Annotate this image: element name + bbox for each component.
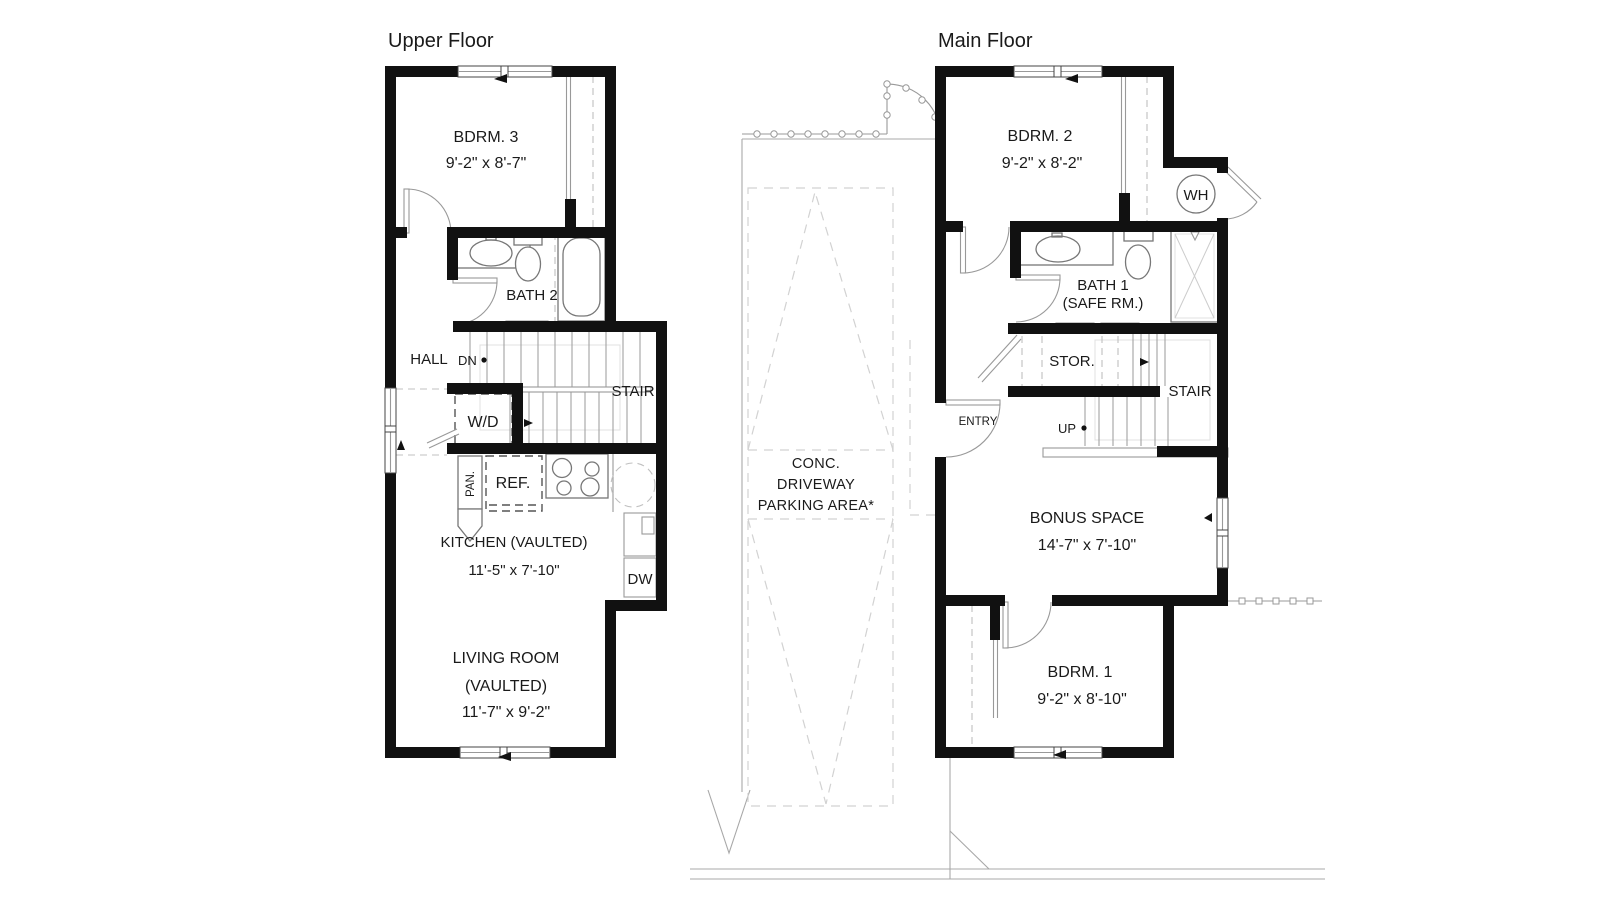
bath1-door xyxy=(1016,275,1060,322)
sidewalk xyxy=(690,758,1325,879)
bath2-door xyxy=(453,278,497,325)
storage-label: STOR. xyxy=(1049,353,1095,370)
bonus-space-dims: 14'-7" x 7'-10" xyxy=(1038,537,1136,554)
kitchen-dims: 11'-5" x 7'-10" xyxy=(468,562,559,579)
bedroom3-label: BDRM. 3 xyxy=(454,129,519,146)
kitchen-label: KITCHEN (VAULTED) xyxy=(441,534,588,551)
stove-icon xyxy=(546,454,608,498)
main-floor-plan: Main Floor xyxy=(935,30,1261,759)
stair-up-dot xyxy=(1081,425,1086,430)
driveway-label-line1: CONC. xyxy=(792,456,840,472)
stair-direction-arrow xyxy=(1140,358,1149,366)
washer-dryer-label: W/D xyxy=(467,414,498,431)
bedroom3-dims: 9'-2" x 8'-7" xyxy=(446,155,527,172)
living-room-dims: 11'-7" x 9'-2" xyxy=(462,704,550,721)
upper-floor-plan: Upper Floor xyxy=(385,30,667,761)
floor-plan-drawing: CONC. DRIVEWAY PARKING AREA* xyxy=(0,0,1600,905)
upper-floor-title: Upper Floor xyxy=(388,30,494,52)
window-arrow xyxy=(397,440,405,450)
stair-up-label: UP xyxy=(1058,421,1076,436)
entry-door xyxy=(946,400,1000,457)
bedroom2-door xyxy=(961,227,1010,273)
upper-stair-label: STAIR xyxy=(611,383,654,400)
bedroom1-door xyxy=(1003,602,1051,648)
window-arrow xyxy=(1204,513,1212,522)
window xyxy=(1217,498,1228,568)
window xyxy=(385,388,396,473)
storage-door xyxy=(978,335,1021,382)
bedroom3-door xyxy=(404,189,451,233)
stair-dn-dot xyxy=(481,357,486,362)
driveway-label-line2: DRIVEWAY xyxy=(777,477,855,493)
main-floor-title: Main Floor xyxy=(938,30,1033,52)
site-plan: CONC. DRIVEWAY PARKING AREA* xyxy=(690,81,1325,879)
living-room-label2: (VAULTED) xyxy=(465,678,547,695)
bedroom1-label: BDRM. 1 xyxy=(1048,664,1113,681)
bedroom2-label: BDRM. 2 xyxy=(1008,128,1073,145)
parking-area-markings xyxy=(748,188,935,806)
bedroom2-dims: 9'-2" x 8'-2" xyxy=(1002,155,1083,172)
living-room-label: LIVING ROOM xyxy=(453,650,560,667)
bonus-space-label: BONUS SPACE xyxy=(1030,510,1144,527)
bath1-label2: (SAFE RM.) xyxy=(1063,295,1144,312)
dishwasher-label: DW xyxy=(628,571,654,588)
hall-label: HALL xyxy=(410,351,448,368)
bedroom1-dims: 9'-2" x 8'-10" xyxy=(1037,691,1127,708)
vanity-counter xyxy=(1019,231,1113,265)
pantry-cabinet xyxy=(458,456,482,541)
bath2-label: BATH 2 xyxy=(506,287,557,304)
water-heater-label: WH xyxy=(1184,187,1209,204)
water-heater-door xyxy=(1224,167,1261,219)
toilet-icon xyxy=(514,235,542,281)
toilet-icon xyxy=(1124,231,1153,279)
table-outline xyxy=(611,463,655,507)
bathtub-icon xyxy=(558,233,605,321)
shower-icon xyxy=(1171,230,1218,322)
main-stair-label: STAIR xyxy=(1168,383,1211,400)
pantry-label: PAN. xyxy=(465,471,477,497)
driveway-label-line3: PARKING AREA* xyxy=(758,498,875,514)
floor-plan-page: CONC. DRIVEWAY PARKING AREA* xyxy=(0,0,1600,905)
window xyxy=(1014,66,1102,77)
fence-east xyxy=(1228,598,1322,604)
refrigerator-label: REF. xyxy=(496,475,531,492)
stair-dn-label: DN xyxy=(458,353,477,368)
entry-label: ENTRY xyxy=(959,416,998,428)
bath1-label: BATH 1 xyxy=(1077,277,1128,294)
kitchen-sink-cabinet xyxy=(624,513,656,556)
fence-north xyxy=(742,81,941,138)
gate-swing-arc xyxy=(887,84,941,138)
property-line-arrow xyxy=(708,790,750,853)
parking-outline xyxy=(748,188,893,806)
walkway-diagonal xyxy=(950,831,989,869)
